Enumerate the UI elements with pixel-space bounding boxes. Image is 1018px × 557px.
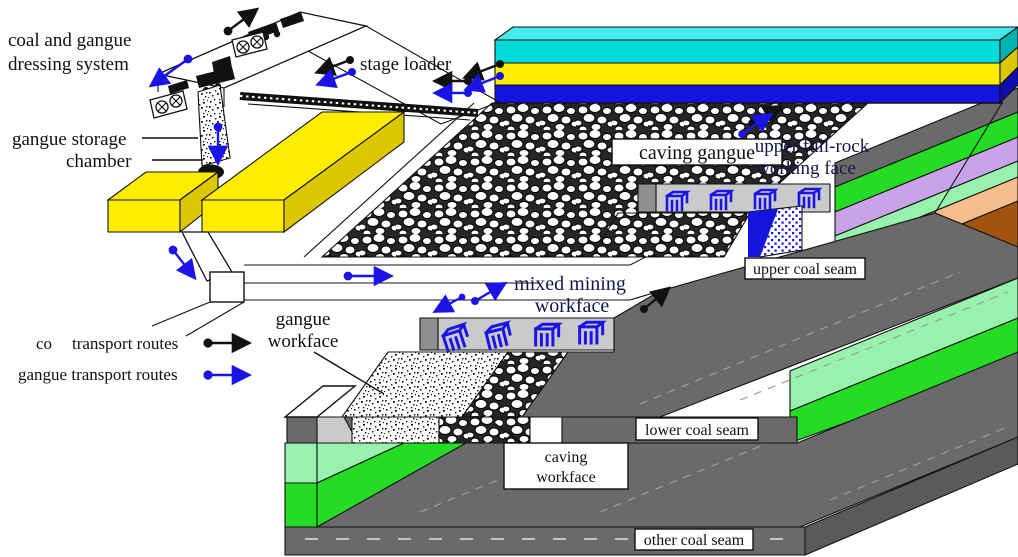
caving-gangue-label: caving gangue <box>639 142 755 164</box>
gate-transport-arrow <box>344 272 390 281</box>
mixed-face-label-line1: mixed mining <box>514 273 626 295</box>
dressing-system-label-line1: coal and gangue <box>8 30 131 51</box>
mixed-face-label-line2: workface <box>535 295 610 317</box>
dressing-system-label-line2: dressing system <box>8 54 129 75</box>
lower-gob <box>342 352 568 443</box>
caving-workface-label-line2: workface <box>536 469 596 486</box>
yellow-block-b-front <box>202 200 284 232</box>
rib-top-face <box>285 386 355 417</box>
gangue-backfill-front <box>352 417 439 443</box>
roof-blue-front <box>495 85 1000 103</box>
mixed-support-band-cap <box>420 318 438 350</box>
gangue-storage-label-line1: gangue storage <box>12 129 126 150</box>
roof-strata-block <box>495 27 1018 103</box>
rib-mint-front <box>285 443 317 483</box>
upper-support-band-cap <box>638 184 656 212</box>
legend-coal-label: transport routes <box>72 334 178 353</box>
loader-return-arrows <box>436 77 472 97</box>
mixed-working-face <box>420 318 614 351</box>
upper-face-label-line2: working face <box>756 158 856 179</box>
upper-face-label-line1: upper full-rock <box>755 136 870 157</box>
upper-gob-strip <box>592 213 750 257</box>
roof-cyan-front <box>495 40 1000 63</box>
open-face-gap <box>530 417 562 443</box>
roof-top-face <box>495 27 1018 40</box>
stage-loader-label: stage loader <box>360 54 452 75</box>
mining-system-diagram: coal and gangue dressing system gangue s… <box>0 0 1018 557</box>
gate-down-arrow <box>169 246 194 277</box>
yellow-block-a-front <box>108 200 180 232</box>
gangue-workface-label-line2: workface <box>268 331 339 352</box>
roof-yellow-front <box>495 63 1000 85</box>
gangue-storage-label-line2: chamber <box>66 151 132 172</box>
gate-junction-box <box>210 272 244 302</box>
other-coal-seam-label: other coal seam <box>644 532 745 549</box>
caving-workface-label-line1: caving <box>545 449 588 466</box>
legend-coal-prefix: co <box>36 334 52 353</box>
stage-loader-conveyor <box>240 96 478 113</box>
rib-green-front <box>285 483 317 527</box>
lower-coal-seam-label: lower coal seam <box>645 422 750 439</box>
gangue-workface-label-line1: gangue <box>276 309 331 330</box>
legend-gangue-label: gangue transport routes <box>18 365 178 384</box>
upper-coal-seam-label: upper coal seam <box>753 261 858 278</box>
legend: co transport routes gangue transport rou… <box>18 334 248 384</box>
